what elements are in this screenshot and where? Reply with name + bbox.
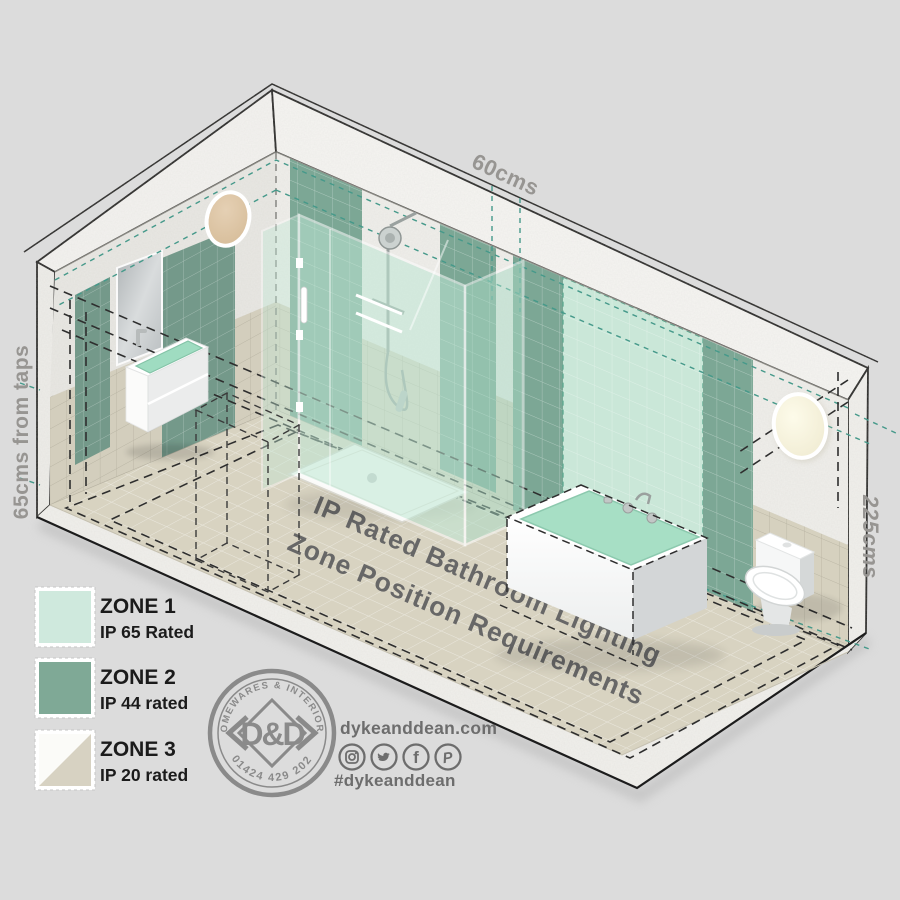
zone3-label: ZONE 3 <box>100 738 176 761</box>
zone2-label: ZONE 2 <box>100 666 176 689</box>
legend-item-zone1: ZONE 1 IP 65 Rated <box>35 587 194 647</box>
shower-glass-side <box>465 261 523 545</box>
mirror <box>117 251 162 365</box>
shower-door-handle[interactable] <box>301 287 307 323</box>
bathroom-isometric-diagram: IP Rated Bathroom Lighting Zone Position… <box>0 0 900 900</box>
zone1-swatch <box>39 591 91 643</box>
hashtag-label: #dykeanddean <box>334 771 456 790</box>
logo-monogram: D&D <box>240 716 304 752</box>
legend-item-zone3: ZONE 3 IP 20 rated <box>35 730 188 790</box>
zone2-swatch <box>39 662 91 714</box>
svg-text:f: f <box>413 748 419 767</box>
vanity-end-face <box>126 367 148 432</box>
zone3-rating: IP 20 rated <box>100 765 188 785</box>
zone1-rating: IP 65 Rated <box>100 622 194 642</box>
legend-item-zone2: ZONE 2 IP 44 rated <box>35 658 188 718</box>
zone2-panel-bath-right <box>703 338 753 613</box>
dimension-right: 225cms <box>858 494 883 579</box>
zone1-label: ZONE 1 <box>100 595 176 618</box>
dimension-left: 65cms from taps <box>10 345 33 519</box>
website-link[interactable]: dykeanddean.com <box>340 718 497 738</box>
infographic-canvas: IP Rated Bathroom Lighting Zone Position… <box>0 0 900 900</box>
legend: ZONE 1 IP 65 Rated ZONE 2 IP 44 rated ZO… <box>35 587 194 790</box>
zone2-rating: IP 44 rated <box>100 693 188 713</box>
